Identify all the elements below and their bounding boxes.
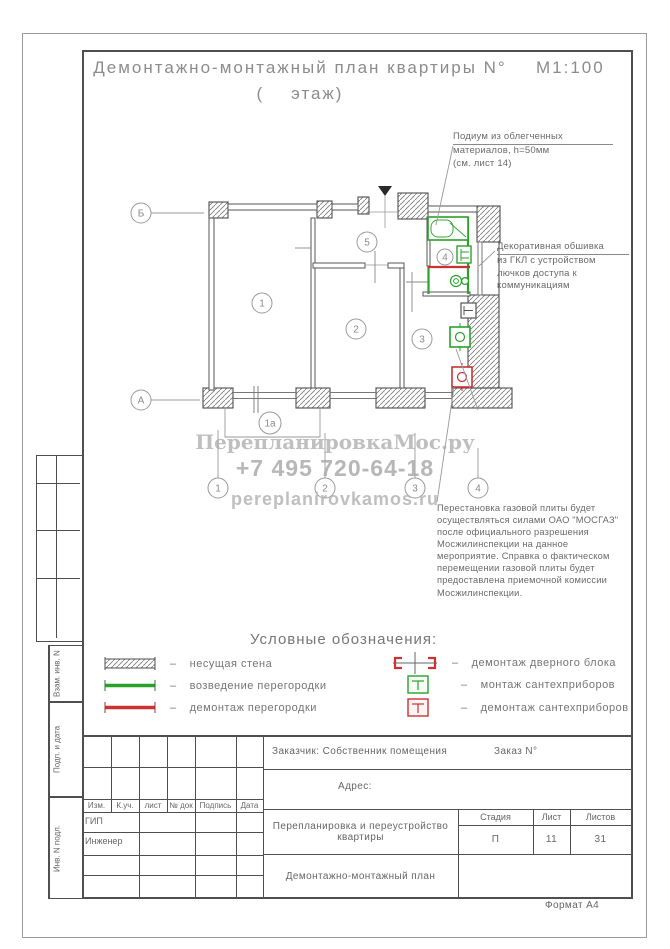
tb-header-kuch: К.уч. bbox=[111, 799, 139, 812]
legend-dash: – bbox=[170, 680, 177, 692]
tb-order: Заказ N° bbox=[494, 746, 537, 757]
sidebar-cell-vzam: Взам. инв. N bbox=[48, 645, 84, 702]
tb-sheets-value: 31 bbox=[570, 825, 631, 854]
legend-label: демонтаж сантехприборов bbox=[481, 702, 629, 714]
axis-label-4: 4 bbox=[475, 484, 481, 495]
legend-item-door-demolition: – демонтаж дверного блока bbox=[391, 650, 616, 676]
legend-item-new-partition: – возведение перегородки bbox=[103, 679, 326, 692]
tb-sheet-value: 11 bbox=[533, 825, 570, 854]
axis-label-1a: 1а bbox=[264, 419, 276, 430]
entrance-arrow-icon bbox=[378, 186, 392, 196]
legend-label: демонтаж дверного блока bbox=[472, 657, 616, 669]
title-block: Изм. К.уч. лист № док Подпись Дата ГИП И… bbox=[82, 735, 631, 899]
legend-dash: – bbox=[461, 702, 468, 714]
legend-item-bearing-wall: – несущая стена bbox=[103, 656, 272, 671]
tb-address: Адрес: bbox=[338, 781, 372, 792]
sidebar-cell-podp: Подп. и дата bbox=[48, 702, 84, 797]
axis-label-3: 3 bbox=[412, 484, 418, 495]
stove-new-icon bbox=[450, 323, 470, 351]
room-label-2: 2 bbox=[353, 325, 359, 336]
legend-dash: – bbox=[170, 702, 177, 714]
room-label-4: 4 bbox=[442, 253, 448, 264]
tb-header-podpis: Подпись bbox=[195, 799, 236, 812]
format-label: Формат А4 bbox=[545, 900, 599, 911]
note-gas: Перестановка газовой плиты будет осущест… bbox=[437, 502, 631, 599]
sidebar-label: Инв. N подл. bbox=[49, 798, 64, 898]
legend-heading: Условные обозначения: bbox=[250, 631, 437, 648]
tb-role-gip: ГИП bbox=[85, 816, 103, 826]
plumbing-demolition-symbol-icon bbox=[406, 697, 432, 719]
bearing-wall-symbol-icon bbox=[103, 656, 157, 671]
tb-sheet-name: Демонтажно-монтажный план bbox=[263, 854, 458, 899]
legend-label: возведение перегородки bbox=[190, 680, 327, 692]
legend-dash: – bbox=[461, 679, 468, 691]
note-cladding: Декоративная обшивка из ГКЛ с устройство… bbox=[497, 241, 633, 292]
tb-stage-label: Стадия bbox=[458, 809, 533, 825]
legend-dash: – bbox=[170, 658, 177, 670]
room-label-1: 1 bbox=[259, 299, 265, 310]
legend-dash: – bbox=[452, 657, 459, 669]
tb-stage-value: П bbox=[458, 825, 533, 854]
sidebar-approval-table bbox=[36, 455, 84, 642]
room-label-3: 3 bbox=[419, 335, 425, 346]
legend-item-demolished-partition: – демонтаж перегородки bbox=[103, 701, 317, 714]
tb-project-name: Перепланировка и переустройство квартиры bbox=[263, 809, 458, 854]
axis-label-b: Б bbox=[138, 209, 145, 220]
note-podium: Подиум из облегченных материалов, h=50мм… bbox=[453, 131, 631, 170]
axis-label-a: А bbox=[138, 396, 145, 407]
tb-customer: Заказчик: Собственник помещения bbox=[272, 746, 447, 757]
room-label-5: 5 bbox=[364, 238, 370, 249]
demolished-partition-symbol-icon bbox=[103, 701, 157, 714]
sink-new-icon bbox=[457, 246, 471, 263]
tb-sheet-label: Лист bbox=[533, 809, 570, 825]
drawing-sheet: Демонтажно-монтажный план квартиры N° М1… bbox=[0, 0, 670, 949]
tb-header-data: Дата bbox=[236, 799, 263, 812]
plumbing-install-symbol-icon bbox=[406, 674, 432, 696]
legend-item-plumbing-demolition: – демонтаж сантехприборов bbox=[403, 697, 629, 719]
new-partition-symbol-icon bbox=[103, 679, 157, 692]
door-demolition-symbol-icon bbox=[391, 650, 439, 676]
bathtub-icon bbox=[428, 217, 468, 240]
legend-label: несущая стена bbox=[190, 658, 273, 670]
tb-header-ndok: № док bbox=[167, 799, 195, 812]
tb-header-izm: Изм. bbox=[82, 799, 111, 812]
axis-markers bbox=[131, 203, 488, 498]
toilet-icon bbox=[451, 276, 469, 287]
stove-demolished-icon bbox=[452, 363, 472, 391]
legend-label: монтаж сантехприборов bbox=[481, 679, 615, 691]
sidebar-cell-inv: Инв. N подл. bbox=[48, 797, 84, 899]
kitchen-sink-icon bbox=[461, 303, 476, 318]
sidebar-label: Взам. инв. N bbox=[49, 646, 64, 701]
legend-item-plumbing-install: – монтаж сантехприборов bbox=[403, 674, 615, 696]
sidebar-label: Подп. и дата bbox=[49, 703, 64, 796]
legend-label: демонтаж перегородки bbox=[190, 702, 317, 714]
tb-sheets-label: Листов bbox=[570, 809, 631, 825]
tb-role-engineer: Инженер bbox=[85, 836, 122, 846]
axis-label-1: 1 bbox=[215, 484, 221, 495]
tb-header-list: лист bbox=[139, 799, 167, 812]
axis-label-2: 2 bbox=[322, 484, 328, 495]
